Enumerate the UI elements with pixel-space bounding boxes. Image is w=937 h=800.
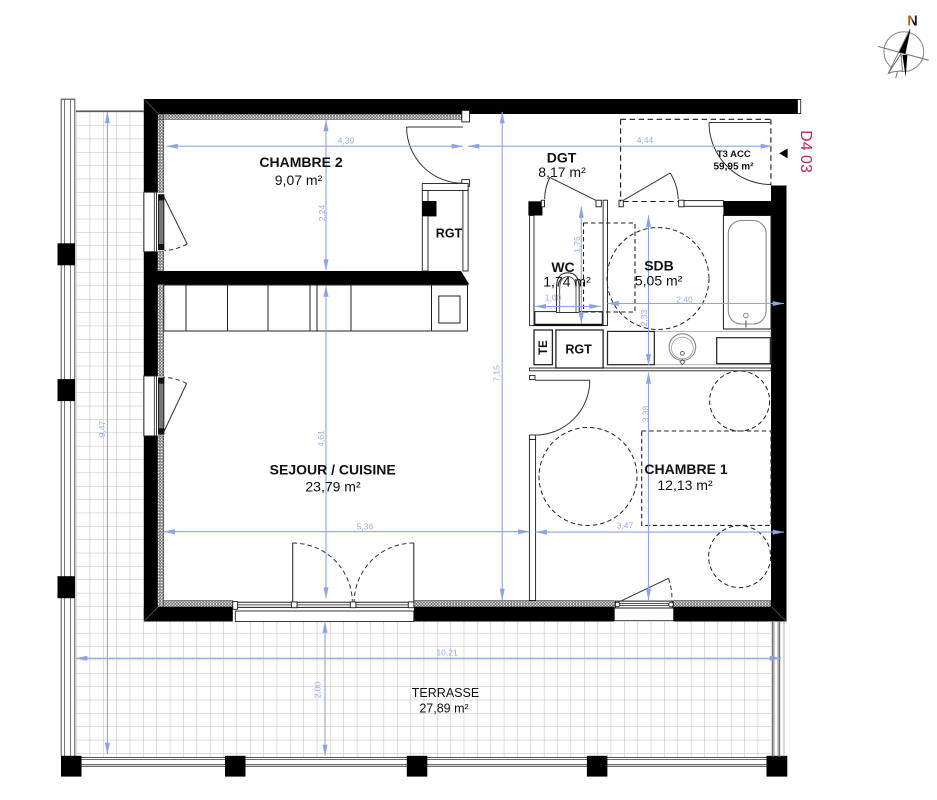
svg-text:3,47: 3,47 [617, 521, 634, 531]
svg-text:4,61: 4,61 [316, 430, 326, 447]
svg-text:9,07 m²: 9,07 m² [275, 172, 323, 188]
svg-text:9,47: 9,47 [97, 420, 107, 437]
svg-text:23,79 m²: 23,79 m² [305, 479, 361, 495]
svg-text:27,89 m²: 27,89 m² [419, 702, 468, 716]
svg-text:1,00: 1,00 [545, 293, 562, 303]
svg-text:CHAMBRE 1: CHAMBRE 1 [644, 461, 727, 477]
svg-text:RGT: RGT [436, 227, 463, 241]
svg-text:3,38: 3,38 [641, 405, 651, 422]
svg-text:7,15: 7,15 [492, 365, 502, 382]
svg-text:1,75: 1,75 [572, 236, 582, 253]
svg-text:TE: TE [538, 340, 550, 355]
svg-text:2,33: 2,33 [639, 309, 649, 326]
svg-text:RGT: RGT [565, 343, 592, 357]
svg-text:4,39: 4,39 [338, 136, 355, 146]
svg-text:5,36: 5,36 [357, 522, 374, 532]
svg-text:2,24: 2,24 [317, 204, 327, 221]
svg-text:SDB: SDB [644, 258, 674, 274]
svg-text:CHAMBRE 2: CHAMBRE 2 [259, 154, 342, 170]
svg-text:1,74 m²: 1,74 m² [543, 274, 591, 290]
svg-text:4,44: 4,44 [637, 135, 654, 145]
svg-text:12,13 m²: 12,13 m² [657, 477, 713, 493]
svg-text:N: N [907, 14, 917, 30]
svg-text:TERRASSE: TERRASSE [412, 686, 479, 700]
svg-text:2,40: 2,40 [676, 295, 693, 305]
svg-text:T3 ACC: T3 ACC [717, 149, 751, 160]
svg-text:SEJOUR / CUISINE: SEJOUR / CUISINE [270, 462, 396, 478]
svg-text:2,00: 2,00 [313, 681, 323, 698]
svg-text:59,95 m²: 59,95 m² [713, 162, 754, 173]
svg-text:D4 03: D4 03 [797, 130, 814, 173]
svg-text:10,21: 10,21 [436, 648, 458, 658]
svg-text:5,05 m²: 5,05 m² [635, 273, 683, 289]
svg-text:8,17 m²: 8,17 m² [538, 164, 586, 180]
